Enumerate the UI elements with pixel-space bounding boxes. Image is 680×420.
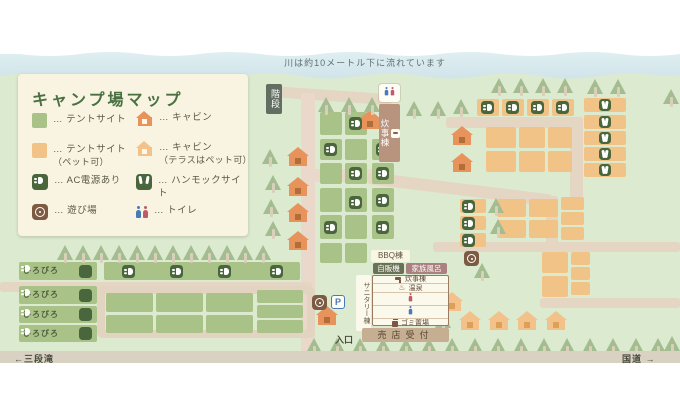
tent-site-pet: [529, 220, 558, 238]
tree-icon: [474, 263, 490, 283]
legend-item-tent-site: … テントサイト: [32, 113, 126, 128]
tree-icon: [57, 245, 73, 265]
cabin-icon: [451, 153, 473, 172]
hammock-site-icon: [599, 116, 611, 128]
tree-icon: [318, 97, 334, 117]
family-bath-label: 家族風呂: [406, 263, 447, 274]
shop-reception-label: 売店受付: [362, 328, 449, 342]
playground-icon: [312, 295, 327, 310]
tree-icon: [262, 149, 278, 169]
tent-site-pet: [561, 197, 584, 210]
hammock-site-icon: [599, 148, 611, 160]
bbq-label: BBQ棟: [371, 250, 410, 262]
tent-site-pet: [571, 267, 590, 280]
hammock-site-icon: [136, 174, 152, 190]
cabin-icon: [287, 177, 309, 196]
tree-icon: [237, 245, 253, 265]
tent-site-pet: [548, 127, 572, 148]
river-note: 川は約10メートル下に流れています: [240, 56, 490, 69]
tent-site: [156, 293, 203, 312]
tree-icon: [93, 245, 109, 265]
cabin-icon: [287, 231, 309, 250]
ac-power-icon: [32, 174, 48, 190]
tent-site-pet: [571, 252, 590, 265]
legend-item-toilet: … トイレ: [136, 204, 197, 218]
hammock-site-icon: [599, 99, 611, 111]
tree-icon: [430, 101, 446, 121]
tent-site: [206, 293, 253, 312]
man-icon: [136, 206, 141, 218]
ac-power-icon: [376, 194, 389, 207]
detail-row-cooking: 炊事棟: [373, 276, 448, 284]
vending-machine-label: 自販機: [373, 263, 404, 274]
legend-panel: キャンプ場マップ … テントサイト … キャビン … テントサイト（ペット可） …: [18, 74, 248, 236]
ac-power-icon: [270, 265, 283, 278]
tree-icon: [453, 99, 469, 119]
ac-power-icon: [79, 289, 92, 302]
tent-site-pet: [561, 227, 584, 240]
woman-icon: [409, 293, 413, 301]
tree-icon: [111, 245, 127, 265]
tree-icon: [165, 245, 181, 265]
ac-power-icon: [556, 101, 569, 114]
tent-site: [345, 215, 367, 239]
ac-power-icon: [506, 101, 519, 114]
tent-site-pet: [519, 151, 545, 172]
tent-site: [257, 290, 303, 303]
cabin-pet-icon: [516, 311, 538, 330]
ac-power-icon: [79, 308, 92, 321]
tent-site: [345, 243, 367, 263]
hammock-site-icon: [599, 164, 611, 176]
parking-icon: P: [331, 295, 345, 309]
tent-site-pet: [542, 276, 568, 297]
sanitary-building-label: サニタリー棟: [356, 275, 371, 331]
tent-site-pet: [529, 199, 558, 217]
legend-item-playground: … 遊び場: [32, 204, 97, 220]
tent-site: [257, 305, 303, 318]
tent-site-swatch: [32, 113, 47, 128]
tent-site: [345, 139, 367, 160]
ac-power-icon: [481, 101, 494, 114]
tree-icon: [364, 97, 380, 117]
tree-icon: [488, 198, 504, 218]
tent-site-pet-swatch: [32, 143, 47, 158]
tree-icon: [183, 245, 199, 265]
legend-title: キャンプ場マップ: [32, 86, 184, 110]
cabin-pet-icon: [136, 141, 153, 156]
ac-power-icon: [462, 200, 475, 213]
tree-icon: [75, 245, 91, 265]
tent-site-pet: [542, 252, 568, 273]
tent-site-pet: [561, 212, 584, 225]
legend-item-cabin-pet: … キャビン（テラスはペット可）: [136, 141, 248, 167]
tree-icon: [406, 101, 422, 121]
cabin-pet-icon: [488, 311, 510, 330]
tent-site-row-hirobiro: ひろびろ: [19, 325, 97, 342]
sandan-falls-label: ←三段滝: [14, 352, 54, 365]
cabin-pet-icon: [459, 311, 481, 330]
tree-icon: [129, 245, 145, 265]
tent-site: [156, 315, 203, 333]
tent-site-pet: [571, 282, 590, 295]
main-road: [0, 351, 680, 363]
tent-site-row-hirobiro: ひろびろ: [19, 286, 97, 304]
ac-power-icon: [376, 167, 389, 180]
stairs-label: 階段: [266, 84, 282, 114]
ac-power-icon: [79, 265, 92, 278]
ac-power-icon: [349, 196, 362, 209]
kokudo-label: 国道 →: [622, 352, 656, 365]
tree-icon: [610, 79, 626, 99]
ac-power-icon: [376, 221, 389, 234]
ac-power-icon: [349, 167, 362, 180]
ac-power-icon: [324, 221, 337, 234]
detail-row-men-toilet: [373, 306, 448, 319]
ac-power-icon: [170, 265, 183, 278]
tree-icon: [491, 78, 507, 98]
tree-icon: [201, 245, 217, 265]
campground-map: 川は約10メートル下に流れています ひろびろ ひろびろ ひろびろ ひろびろ: [0, 0, 680, 420]
tree-icon: [265, 175, 281, 195]
legend-item-tent-site-pet: … テントサイト（ペット可）: [32, 143, 126, 169]
tree-icon: [255, 245, 271, 265]
ac-power-icon: [531, 101, 544, 114]
tree-icon: [587, 79, 603, 99]
tent-site: [106, 293, 153, 312]
legend-item-hammock: … ハンモックサイト: [136, 174, 248, 201]
road: [540, 298, 680, 308]
tree-icon: [663, 89, 679, 109]
onsen-icon: ♨: [398, 284, 405, 292]
ac-power-icon: [349, 117, 362, 130]
hammock-site-icon: [599, 132, 611, 144]
tree-icon: [557, 78, 573, 98]
tree-icon: [535, 78, 551, 98]
tree-icon: [219, 245, 235, 265]
detail-row-women-toilet: [373, 293, 448, 306]
legend-item-cabin: … キャビン: [136, 111, 212, 126]
entrance-label: 入口: [331, 333, 357, 346]
cabin-icon: [287, 203, 309, 222]
woman-icon: [391, 87, 395, 95]
ac-power-icon: [122, 265, 135, 278]
tree-icon: [265, 221, 281, 241]
detail-row-onsen: ♨温泉: [373, 284, 448, 293]
tent-site: [320, 243, 342, 263]
sanitary-detail-box: 炊事棟 ♨温泉 ゴミ置場: [372, 275, 449, 326]
man-icon: [385, 87, 389, 95]
tent-site: [206, 315, 253, 333]
tent-site-pet: [519, 127, 545, 148]
tree-icon: [263, 199, 279, 219]
cabin-icon: [136, 111, 153, 126]
faucet-icon: [391, 129, 400, 138]
faucet-icon: [395, 276, 402, 283]
playground-icon: [32, 204, 48, 220]
tent-site: [320, 163, 342, 184]
detail-row-trash: ゴミ置場: [373, 319, 448, 327]
tent-site-pet: [486, 127, 516, 148]
tree-icon: [513, 78, 529, 98]
tent-site: [320, 188, 342, 212]
woman-icon: [143, 206, 148, 218]
ac-power-icon: [462, 217, 475, 230]
cabin-icon: [287, 147, 309, 166]
cooking-annex-label: 炊事棟: [379, 104, 400, 162]
toilet-icon: [379, 84, 400, 102]
tent-site: [257, 320, 303, 333]
ac-power-icon: [462, 234, 475, 247]
tent-site-pet: [548, 151, 572, 172]
tent-site-pet: [486, 151, 516, 172]
tree-icon: [147, 245, 163, 265]
tent-site-row-hirobiro: ひろびろ: [19, 306, 97, 323]
ac-power-icon: [218, 265, 231, 278]
cabin-icon: [451, 126, 473, 145]
cabin-pet-icon: [545, 311, 567, 330]
man-icon: [409, 306, 413, 314]
ac-power-icon: [324, 143, 337, 156]
legend-item-ac-power: … AC電源あり: [32, 174, 121, 190]
ac-power-icon: [79, 327, 92, 340]
tree-icon: [341, 97, 357, 117]
tent-site: [106, 315, 153, 333]
tree-icon: [490, 219, 506, 239]
toilet-icon: [136, 204, 148, 218]
trash-icon: [392, 321, 398, 327]
